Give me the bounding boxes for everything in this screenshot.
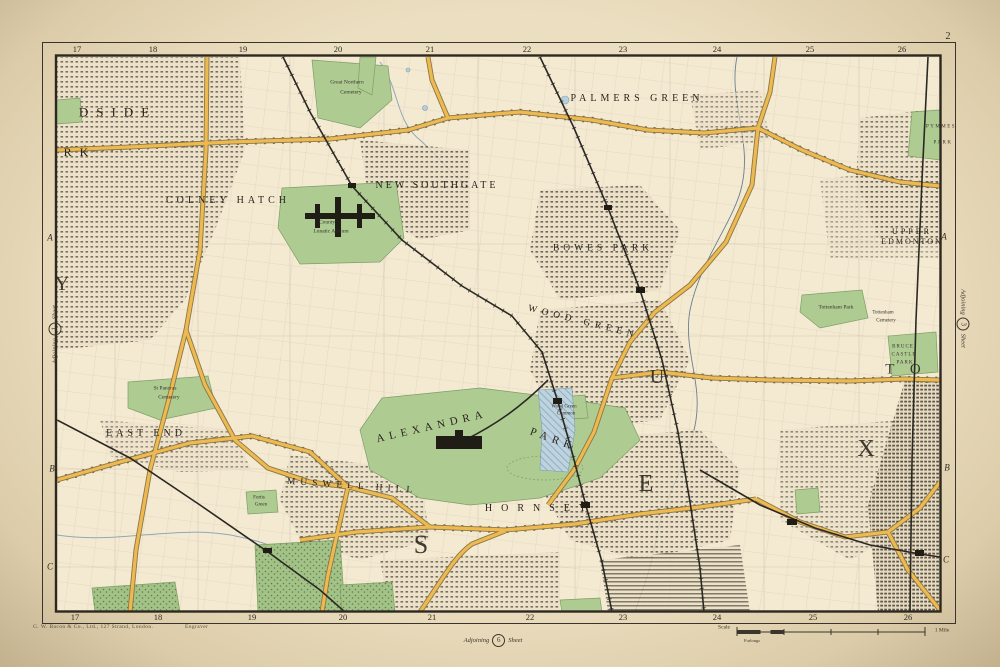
label-district-bowes-park: BOWES PARK (553, 244, 653, 254)
label-district-upper: UPPER (892, 228, 932, 236)
label-place-county: County (319, 220, 335, 226)
grid-number-top-26: 26 (898, 45, 907, 54)
adjoining-bottom-number: 6 (492, 634, 505, 647)
grid-number-bottom-25: 25 (809, 613, 818, 622)
label-place-park: PARK (897, 361, 914, 366)
label-place-tottenham: Tottenham (872, 311, 893, 316)
label-district-hornsey: HORNSEY (485, 504, 595, 514)
adjoining-right-suffix: Sheet (960, 334, 967, 348)
label-place-park: PARK (934, 141, 953, 146)
label-place-cemetery: Cemetery (158, 395, 179, 401)
scale-label: Scale (718, 625, 730, 631)
engraver-imprint: Engraver (185, 624, 208, 630)
row-letter-left-c: C (47, 563, 53, 572)
grid-number-top-18: 18 (149, 45, 158, 54)
adjoining-right-number: 3 (957, 318, 970, 331)
label-district-colney-hatch: COLNEY HATCH (166, 196, 290, 206)
adjoining-left-prefix: Adjoining (52, 338, 59, 364)
grid-number-bottom-19: 19 (248, 613, 257, 622)
grid-number-top-21: 21 (426, 45, 435, 54)
label-place-st-pancras: St Pancras (153, 386, 176, 392)
label-place-great-northern: Great Northern (330, 80, 363, 86)
row-letter-left-a: A (47, 234, 53, 243)
label-district-new-southgate: NEW SOUTHGATE (376, 181, 499, 191)
grid-number-bottom-18: 18 (154, 613, 163, 622)
label-place-castle: CASTLE (892, 353, 917, 358)
adjoining-left-suffix: Sheet (52, 305, 59, 319)
map-artwork (0, 0, 1000, 667)
label-big-letter-u: U (650, 367, 664, 387)
grid-number-bottom-20: 20 (339, 613, 348, 622)
label-district-edmonton: EDMONTON (881, 238, 943, 246)
label-place-common: Common (557, 412, 576, 417)
adjoining-note-bottom: Adjoining 6 Sheet (428, 634, 558, 647)
grid-number-bottom-22: 22 (526, 613, 535, 622)
adjoining-note-right: Adjoining 3 Sheet (957, 274, 970, 364)
grid-number-top-22: 22 (523, 45, 532, 54)
adjoining-left-number: 1 (49, 322, 62, 335)
row-letter-right-c: C (943, 556, 949, 565)
label-big-letter-x: X (857, 437, 874, 461)
label-place-bruce: BRUCE (892, 345, 914, 350)
grid-number-top-17: 17 (73, 45, 82, 54)
label-place-wood-green: Wood Green (551, 405, 576, 410)
scale-bar (737, 627, 925, 636)
adjoining-right-prefix: Adjoining (960, 289, 967, 315)
scale-end-label: 1 Mile (935, 628, 950, 634)
map-sheet: 2 Adjoining 1 Sheet Adjoining 3 Sheet Ad… (0, 0, 1000, 667)
grid-number-bottom-24: 24 (713, 613, 722, 622)
label-district-dside: DSIDE (79, 106, 157, 119)
publisher-imprint: G. W. Bacon & Co., Ltd., 127 Strand, Lon… (33, 624, 153, 630)
grid-number-bottom-17: 17 (71, 613, 80, 622)
label-place-pymmes: PYMMES (926, 125, 956, 130)
grid-number-top-24: 24 (713, 45, 722, 54)
adjoining-note-left: Adjoining 1 Sheet (49, 290, 62, 380)
label-place-tottenham-park: Tottenham Park (819, 305, 854, 311)
label-big-letter-s: S (414, 532, 428, 558)
label-district-east-end: EAST END (106, 429, 186, 439)
label-district-palmers-green: PALMERS GREEN (570, 94, 703, 104)
label-place-cemetery: Cemetery (340, 90, 361, 96)
grid-number-top-25: 25 (806, 45, 815, 54)
label-place-lunatic-asylum: Lunatic Asylum (313, 229, 348, 235)
adjoining-bottom-prefix: Adjoining (464, 637, 490, 644)
grid-number-bottom-26: 26 (904, 613, 913, 622)
row-letter-left-b: B (49, 465, 55, 474)
grid-number-bottom-23: 23 (619, 613, 628, 622)
label-place-green: Green (255, 503, 267, 508)
grid-number-top-19: 19 (239, 45, 248, 54)
sheet-number: 2 (946, 32, 951, 42)
grid-number-bottom-21: 21 (428, 613, 437, 622)
row-letter-right-b: B (944, 464, 950, 473)
grid-number-top-20: 20 (334, 45, 343, 54)
label-big-letter-e: E (639, 472, 654, 496)
scale-sub-label: Furlongs (744, 639, 760, 644)
label-place-cemetery: Cemetery (876, 319, 895, 324)
adjoining-bottom-suffix: Sheet (508, 637, 522, 644)
label-district-rk: RK (64, 146, 97, 158)
grid-number-top-23: 23 (619, 45, 628, 54)
label-place-fortis: Fortis (253, 496, 265, 501)
label-big-letter-y: Y (55, 274, 69, 294)
